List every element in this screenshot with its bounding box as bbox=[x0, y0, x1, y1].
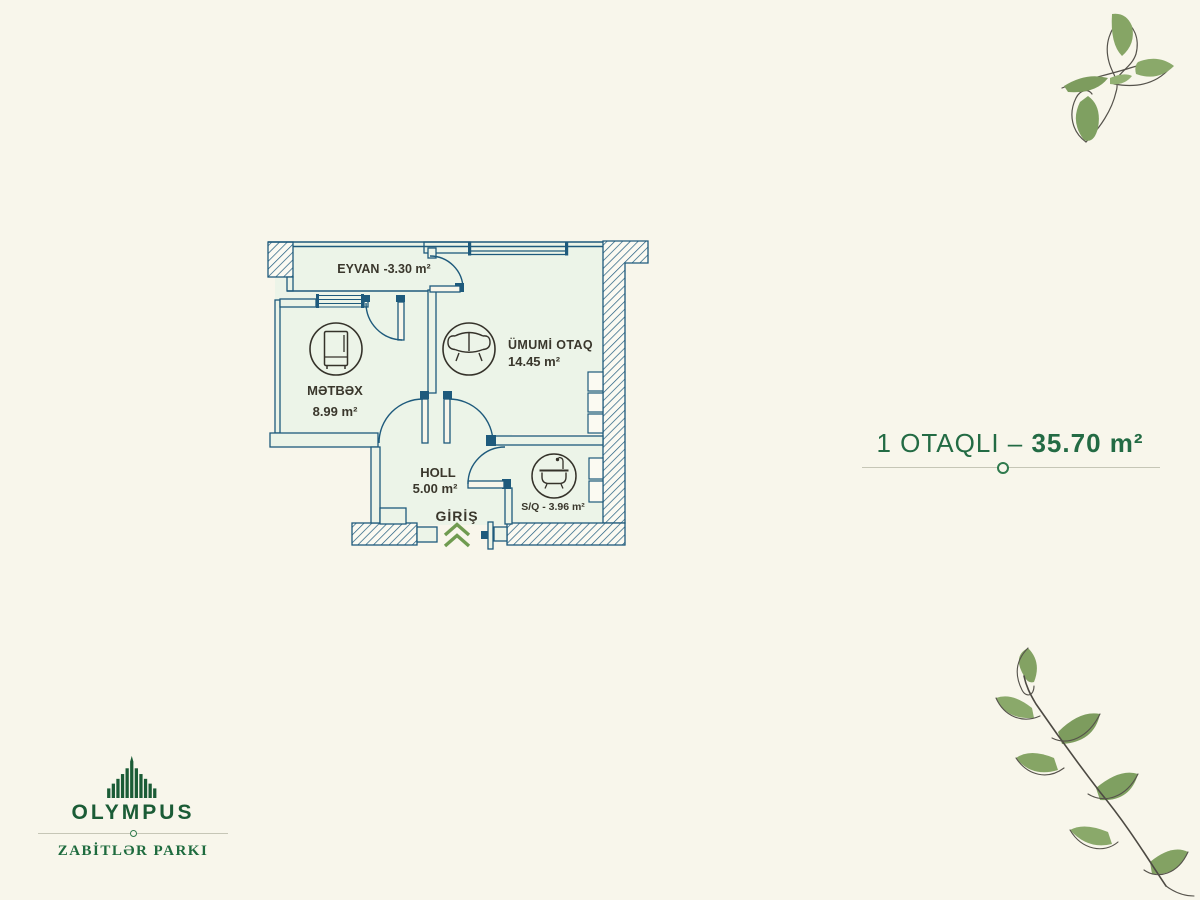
label-metbex: MƏTBƏX bbox=[307, 383, 363, 398]
brochure-page: EYVAN-3.30 m² MƏTBƏX 8.99 m² ÜMUMİ OTAQ … bbox=[0, 0, 1200, 900]
banner-divider-ring bbox=[997, 462, 1009, 474]
leaf-branch-bottom-icon bbox=[988, 646, 1200, 900]
unit-area-value: 35.70 m² bbox=[1031, 428, 1143, 458]
label-metbex-area: 8.99 m² bbox=[313, 404, 358, 419]
banner-divider-line bbox=[862, 467, 1160, 468]
unit-banner: 1 OTAQLI – 35.70 m² bbox=[856, 428, 1164, 459]
brand-name: OLYMPUS bbox=[30, 801, 236, 825]
label-umumi-otaq-area: 14.45 m² bbox=[508, 354, 561, 369]
label-holl-area: 5.00 m² bbox=[413, 481, 458, 496]
label-umumi-otaq: ÜMUMİ OTAQ bbox=[508, 337, 593, 352]
label-eyvan: EYVAN-3.30 m² bbox=[337, 262, 430, 276]
brand-logo: OLYMPUS ZABİTLƏR PARKI bbox=[30, 752, 236, 860]
unit-type-label: 1 OTAQLI – bbox=[876, 428, 1023, 458]
logo-divider-ring bbox=[130, 830, 137, 837]
olympus-building-icon bbox=[106, 752, 160, 798]
floor-plan: EYVAN-3.30 m² MƏTBƏX 8.99 m² ÜMUMİ OTAQ … bbox=[260, 230, 660, 560]
label-giris: GİRİŞ bbox=[435, 508, 478, 524]
entrance-chevrons-icon bbox=[445, 525, 469, 547]
logo-divider bbox=[38, 830, 228, 838]
label-holl: HOLL bbox=[420, 465, 455, 480]
leaf-branch-top-icon bbox=[1052, 10, 1192, 170]
label-sq: S/Q - 3.96 m² bbox=[521, 501, 585, 513]
unit-title: 1 OTAQLI – 35.70 m² bbox=[856, 428, 1164, 459]
park-name: ZABİTLƏR PARKI bbox=[30, 843, 236, 860]
